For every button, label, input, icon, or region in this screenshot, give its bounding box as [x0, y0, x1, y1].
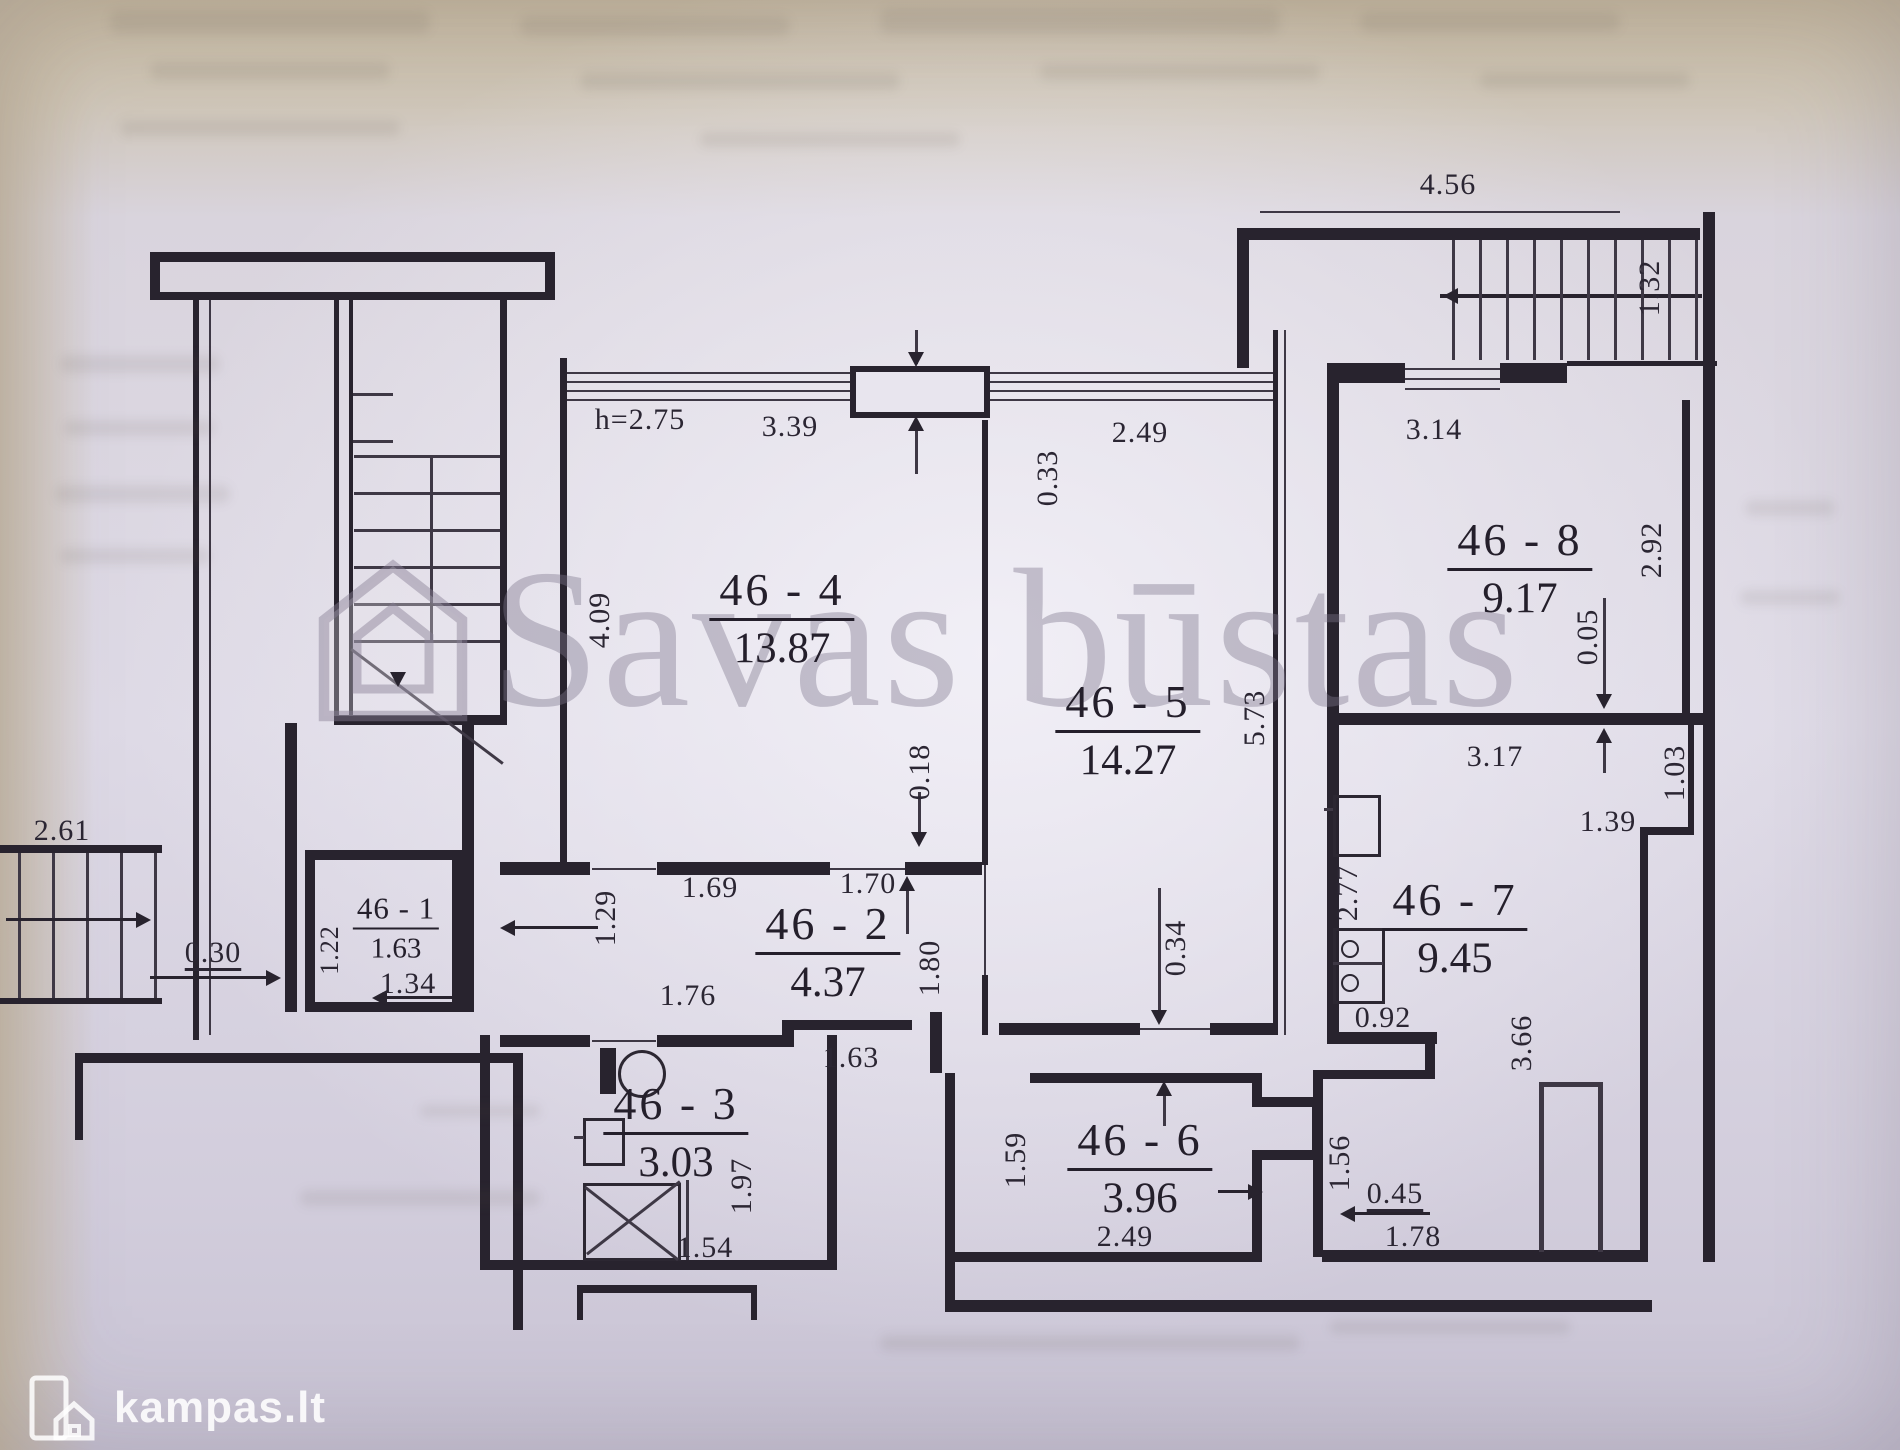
- dim-label: 1.39: [1580, 805, 1637, 839]
- dim-label: 0.05: [1571, 609, 1605, 666]
- dim-label: 1.03: [1658, 745, 1692, 802]
- dim-label: 2.49: [1097, 1220, 1154, 1254]
- dim-label: 1.29: [589, 890, 623, 947]
- dim-label: 5.73: [1238, 690, 1272, 747]
- stair-direction-arrow: [390, 672, 406, 687]
- dim-label: 0.92: [1355, 1001, 1412, 1035]
- dim-label: 1.70: [840, 867, 897, 901]
- dim-label: 1.80: [913, 940, 947, 997]
- dim-label: 0.33: [1031, 450, 1065, 507]
- dim-label: 1.34: [380, 967, 437, 1001]
- room-label-46-5: 46 - 514.27: [1055, 675, 1200, 785]
- entry-direction-arrow: [136, 912, 151, 928]
- room-label-46-6: 46 - 63.96: [1067, 1113, 1212, 1223]
- watermark: Savas būstas: [318, 540, 1520, 738]
- dim-label: 2.92: [1635, 522, 1669, 579]
- ceiling-height-label: h=2.75: [595, 403, 685, 437]
- dim-label: 1.59: [999, 1132, 1033, 1189]
- room-label-46-7: 46 - 79.45: [1382, 873, 1527, 983]
- room-label-46-4: 46 - 413.87: [709, 563, 854, 673]
- kampas-logo-text: kampas.lt: [114, 1383, 326, 1433]
- radiator-icon: [1333, 795, 1381, 857]
- dim-label: 3.39: [762, 410, 819, 444]
- dim-label: 0.18: [903, 744, 937, 801]
- burner-icon: [1341, 974, 1359, 992]
- room-label-46-8: 46 - 89.17: [1447, 513, 1592, 623]
- room-label-46-2: 46 - 24.37: [755, 897, 900, 1007]
- dim-label: 3.17: [1467, 740, 1524, 774]
- dim-label: 1.76: [660, 979, 717, 1013]
- watermark-text: Savas būstas: [490, 540, 1520, 738]
- dim-label: 1.97: [725, 1158, 759, 1215]
- dim-label: 3.14: [1406, 413, 1463, 447]
- dim-label: 0.30: [185, 936, 242, 970]
- dim-label: 2.49: [1112, 416, 1169, 450]
- scanned-floor-plan-page: Savas būstas: [0, 0, 1900, 1450]
- dim-label: 2.77: [1331, 865, 1365, 922]
- dim-label: 0.34: [1159, 920, 1193, 977]
- dim-label: 1.69: [682, 871, 739, 905]
- dim-label: 1.22: [315, 925, 345, 975]
- stove-icon: [1333, 928, 1385, 1004]
- dim-label: 4.56: [1420, 168, 1477, 202]
- dim-label: 1.63: [823, 1041, 880, 1075]
- watermark-house-icon: [318, 557, 468, 722]
- burner-icon: [1341, 940, 1359, 958]
- kampas-logo: kampas.lt: [26, 1372, 326, 1444]
- dim-label: 4.09: [583, 592, 617, 649]
- dim-label: 1.78: [1385, 1220, 1442, 1254]
- kampas-house-icon: [26, 1372, 98, 1444]
- dim-label: 1.56: [1323, 1135, 1357, 1192]
- room-label-46-1: 46 - 11.63: [353, 891, 439, 966]
- dim-label: 1.32: [1633, 260, 1667, 317]
- dim-label: 0.45: [1367, 1177, 1424, 1211]
- dim-label: 1.54: [677, 1231, 734, 1265]
- dim-label: 3.66: [1505, 1015, 1539, 1072]
- dim-label: 2.61: [34, 814, 91, 848]
